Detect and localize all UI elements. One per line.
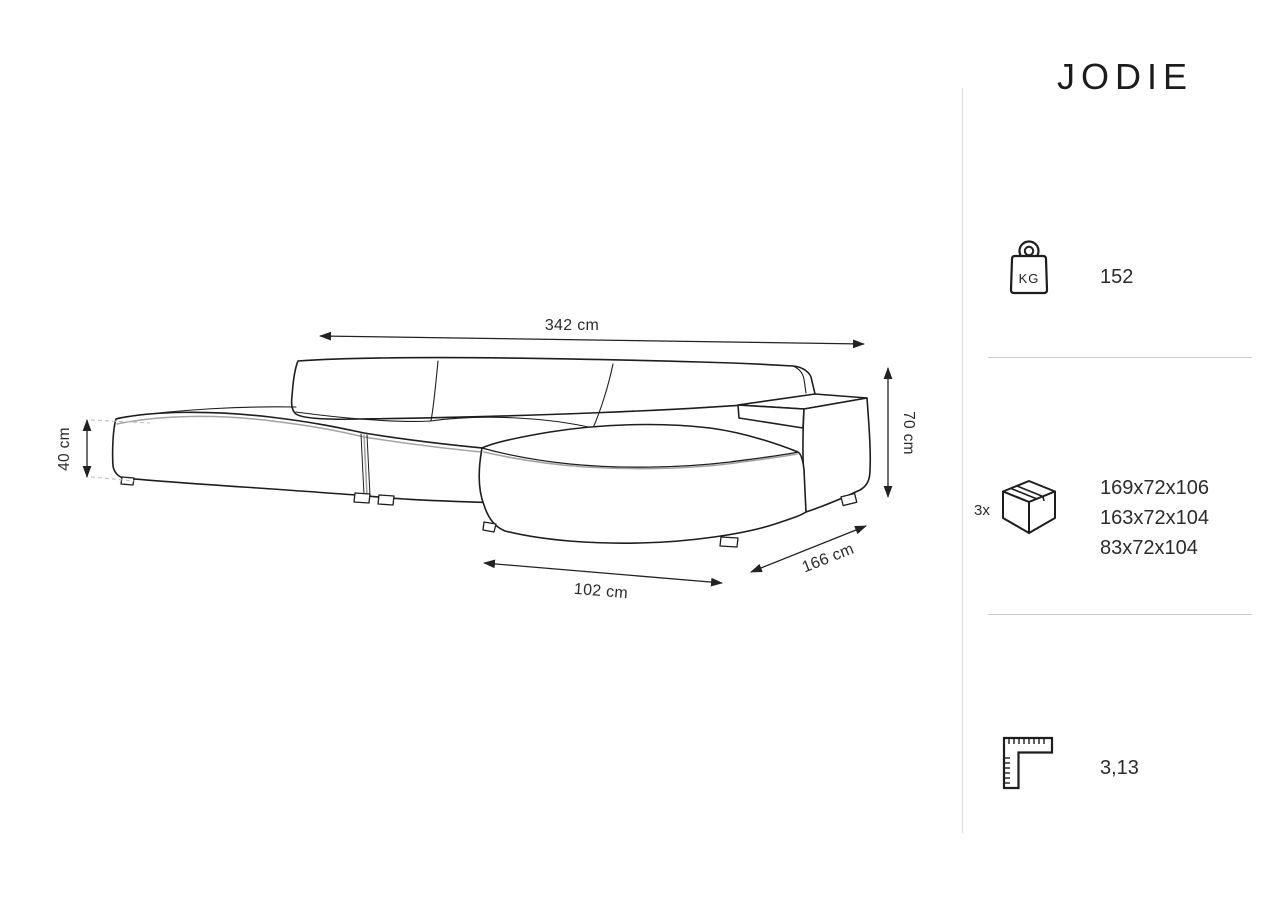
dimension-total-height: 70 cm — [888, 368, 917, 497]
weight-unit-label: KG — [1019, 271, 1040, 286]
sofa-illustration — [113, 358, 871, 547]
sofa-chaise — [479, 425, 806, 547]
dimension-chaise-width-label: 102 cm — [573, 581, 629, 602]
volume-value: 3,13 — [1100, 756, 1139, 781]
dimension-total-depth: 166 cm — [751, 526, 866, 576]
package-size-2: 163x72x104 — [1100, 506, 1209, 531]
sofa-backrest — [292, 358, 815, 428]
sofa-dimension-diagram: 342 cm 40 cm 70 cm 102 cm 166 cm — [0, 0, 1280, 905]
dimension-chaise-width: 102 cm — [484, 563, 722, 602]
panel-vertical-divider — [962, 88, 963, 833]
ruler-icon — [1002, 735, 1056, 791]
panel-divider-1 — [988, 357, 1252, 358]
dimension-total-height-label: 70 cm — [900, 411, 917, 455]
dimension-seat-height-label: 40 cm — [56, 427, 73, 471]
package-box-icon — [1000, 479, 1058, 537]
package-count-label: 3x — [974, 502, 990, 519]
package-size-3: 83x72x104 — [1100, 536, 1209, 561]
dimension-total-depth-label: 166 cm — [800, 541, 857, 577]
package-sizes: 169x72x106 163x72x104 83x72x104 — [1100, 476, 1209, 566]
weight-value: 152 — [1100, 265, 1133, 290]
product-title: JODIE — [1040, 56, 1210, 98]
dimension-total-width: 342 cm — [320, 317, 864, 344]
dimension-total-width-label: 342 cm — [545, 317, 599, 334]
weight-kg-icon: KG — [1006, 235, 1052, 297]
spec-sheet: 342 cm 40 cm 70 cm 102 cm 166 cm JODIE — [0, 0, 1280, 905]
package-size-1: 169x72x106 — [1100, 476, 1209, 501]
panel-divider-2 — [988, 614, 1252, 615]
